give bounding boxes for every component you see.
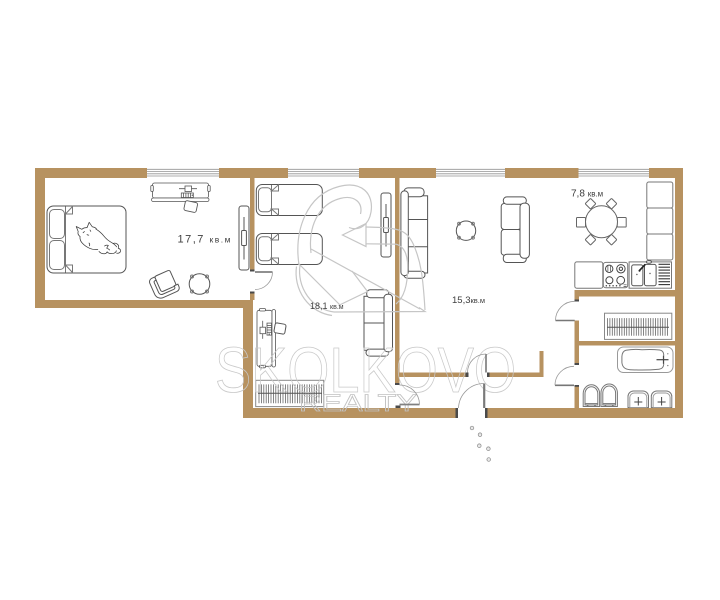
svg-text:7,8 кв.м: 7,8 кв.м — [571, 189, 603, 200]
svg-text:REALTY: REALTY — [299, 390, 417, 417]
svg-text:15,3кв.м: 15,3кв.м — [452, 295, 485, 306]
svg-text:17,7 кв.м: 17,7 кв.м — [178, 234, 232, 246]
